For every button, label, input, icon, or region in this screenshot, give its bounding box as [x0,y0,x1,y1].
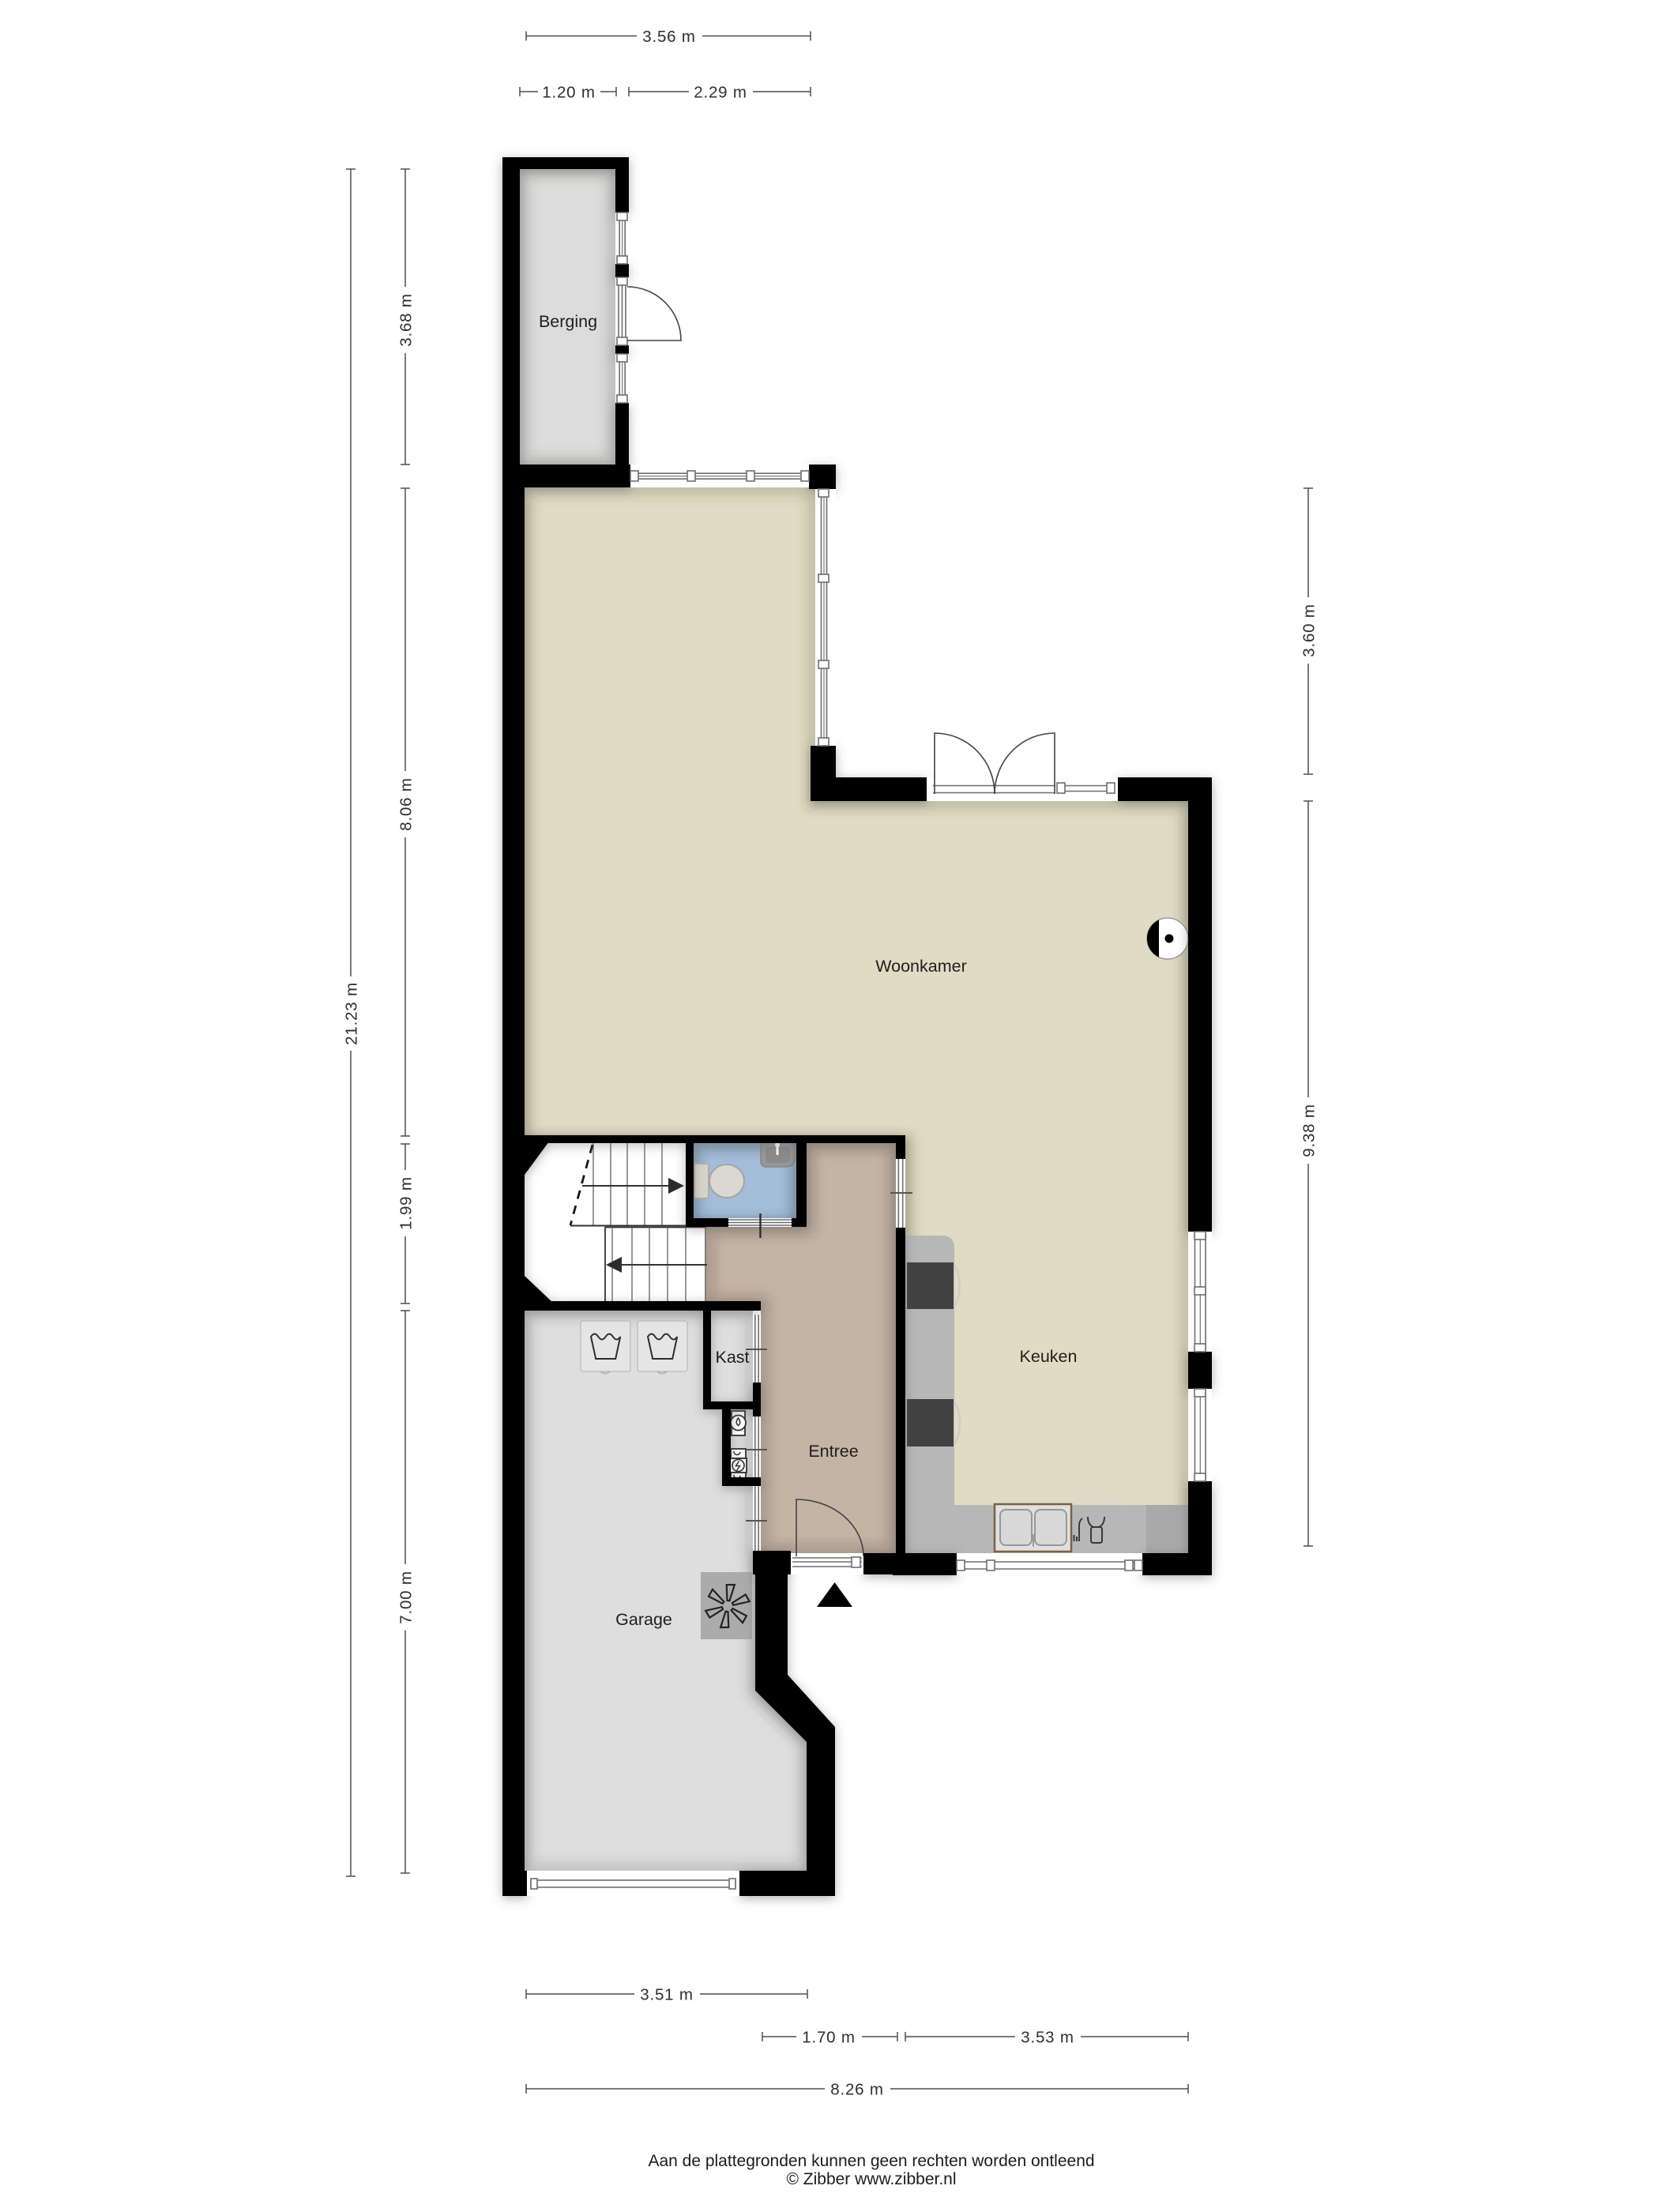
svg-text:Aan de plattegronden kunnen ge: Aan de plattegronden kunnen geen rechten… [648,2152,1094,2170]
svg-text:Berging: Berging [539,312,597,331]
svg-text:Kast: Kast [715,1348,749,1367]
svg-text:© Zibber www.zibber.nl: © Zibber www.zibber.nl [786,2170,956,2188]
svg-text:8.06 m: 8.06 m [397,777,416,830]
svg-text:Woonkamer: Woonkamer [875,957,967,976]
svg-text:3.68 m: 3.68 m [397,293,416,346]
svg-text:1.20 m: 1.20 m [542,84,595,102]
svg-text:3.53 m: 3.53 m [1021,2029,1074,2047]
svg-text:3.60 m: 3.60 m [1300,604,1319,656]
svg-text:3.51 m: 3.51 m [640,1986,693,2004]
svg-text:1.70 m: 1.70 m [802,2029,855,2047]
svg-text:Garage: Garage [615,1610,672,1629]
svg-text:8.26 m: 8.26 m [830,2081,883,2099]
svg-text:9.38 m: 9.38 m [1300,1104,1319,1157]
svg-text:Entree: Entree [808,1442,858,1461]
svg-text:Keuken: Keuken [1020,1347,1078,1366]
svg-text:3.56 m: 3.56 m [642,28,695,46]
svg-text:21.23 m: 21.23 m [343,982,361,1045]
svg-text:1.99 m: 1.99 m [397,1176,416,1229]
svg-text:7.00 m: 7.00 m [397,1571,416,1623]
svg-text:2.29 m: 2.29 m [694,84,747,102]
